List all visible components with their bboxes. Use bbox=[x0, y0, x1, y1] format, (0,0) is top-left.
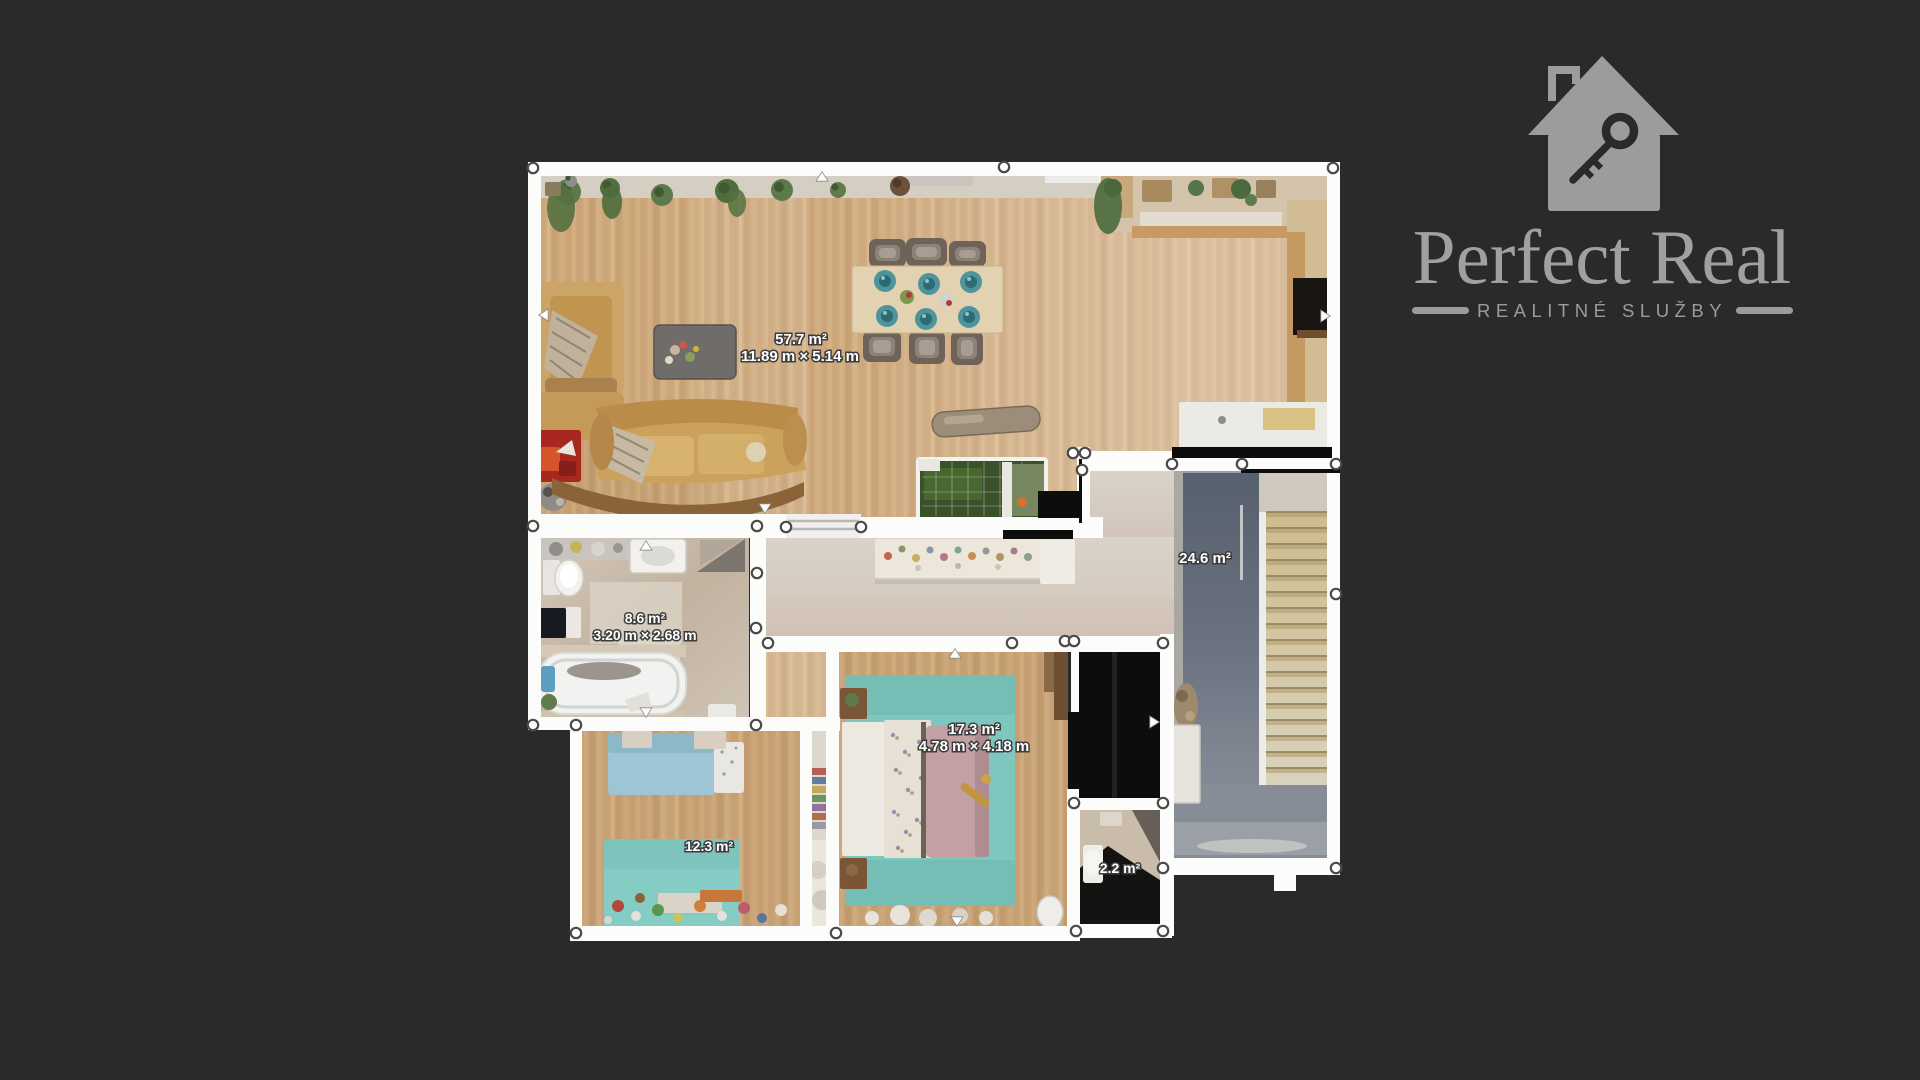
svg-text:Perfect Real: Perfect Real bbox=[1413, 214, 1791, 300]
svg-text:57.7 m²: 57.7 m² bbox=[775, 331, 827, 348]
svg-text:12.3 m²: 12.3 m² bbox=[685, 838, 734, 854]
svg-text:8.6 m²: 8.6 m² bbox=[625, 610, 666, 626]
svg-text:REALITNÉ SLUŽBY: REALITNÉ SLUŽBY bbox=[1477, 300, 1727, 321]
svg-text:11.89 m × 5.14 m: 11.89 m × 5.14 m bbox=[741, 348, 859, 365]
svg-text:2.2 m²: 2.2 m² bbox=[1100, 860, 1141, 876]
svg-text:3.20 m × 2.68 m: 3.20 m × 2.68 m bbox=[593, 627, 696, 643]
svg-text:24.6 m²: 24.6 m² bbox=[1179, 550, 1231, 567]
svg-text:17.3 m²: 17.3 m² bbox=[948, 721, 1000, 738]
svg-text:4.78 m × 4.18 m: 4.78 m × 4.18 m bbox=[919, 738, 1030, 755]
